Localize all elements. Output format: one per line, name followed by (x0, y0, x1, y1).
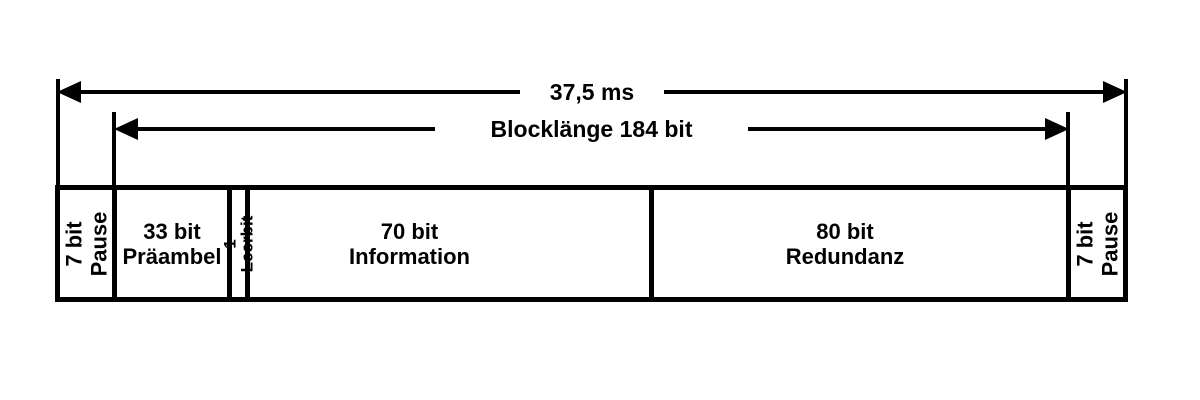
segment-pause-right: 7 bit Pause (1071, 190, 1123, 297)
extension-line-outer-left (56, 79, 60, 186)
segment-praeambel-label: 33 bit Präambel (122, 219, 221, 269)
frame-structure-diagram: 37,5 ms Blocklänge 184 bit 7 bit Pause 3… (0, 0, 1200, 400)
arrowhead-left-icon (57, 81, 81, 103)
frame-bar: 7 bit Pause 33 bit Präambel 1 Leerbit 70… (55, 185, 1128, 302)
measure-line-right (664, 90, 1103, 94)
extension-line-inner-right (1066, 112, 1070, 186)
segment-praeambel: 33 bit Präambel (117, 190, 232, 297)
arrowhead-left-icon (114, 118, 138, 140)
extension-line-outer-right (1124, 79, 1128, 186)
block-length-label: Blocklänge 184 bit (435, 116, 749, 143)
segment-pause-right-label: 7 bit Pause (1072, 211, 1122, 276)
segment-leerbit-label: 1 Leerbit (222, 215, 256, 272)
segment-pause-left: 7 bit Pause (60, 190, 117, 297)
measurement-block-length: Blocklänge 184 bit (114, 116, 1069, 142)
measurement-total-duration: 37,5 ms (57, 79, 1127, 105)
measure-line-left (138, 127, 435, 131)
segment-information: 70 bit Information (250, 190, 654, 297)
measure-line-left (81, 90, 520, 94)
segment-pause-left-label: 7 bit Pause (61, 211, 111, 276)
total-duration-label: 37,5 ms (520, 79, 664, 106)
segment-redundanz: 80 bit Redundanz (654, 190, 1071, 297)
segment-redundanz-label: 80 bit Redundanz (786, 219, 905, 269)
measure-line-right (748, 127, 1045, 131)
segment-leerbit: 1 Leerbit (232, 190, 250, 297)
segment-information-label: 70 bit Information (349, 219, 470, 269)
extension-line-inner-left (112, 112, 116, 186)
